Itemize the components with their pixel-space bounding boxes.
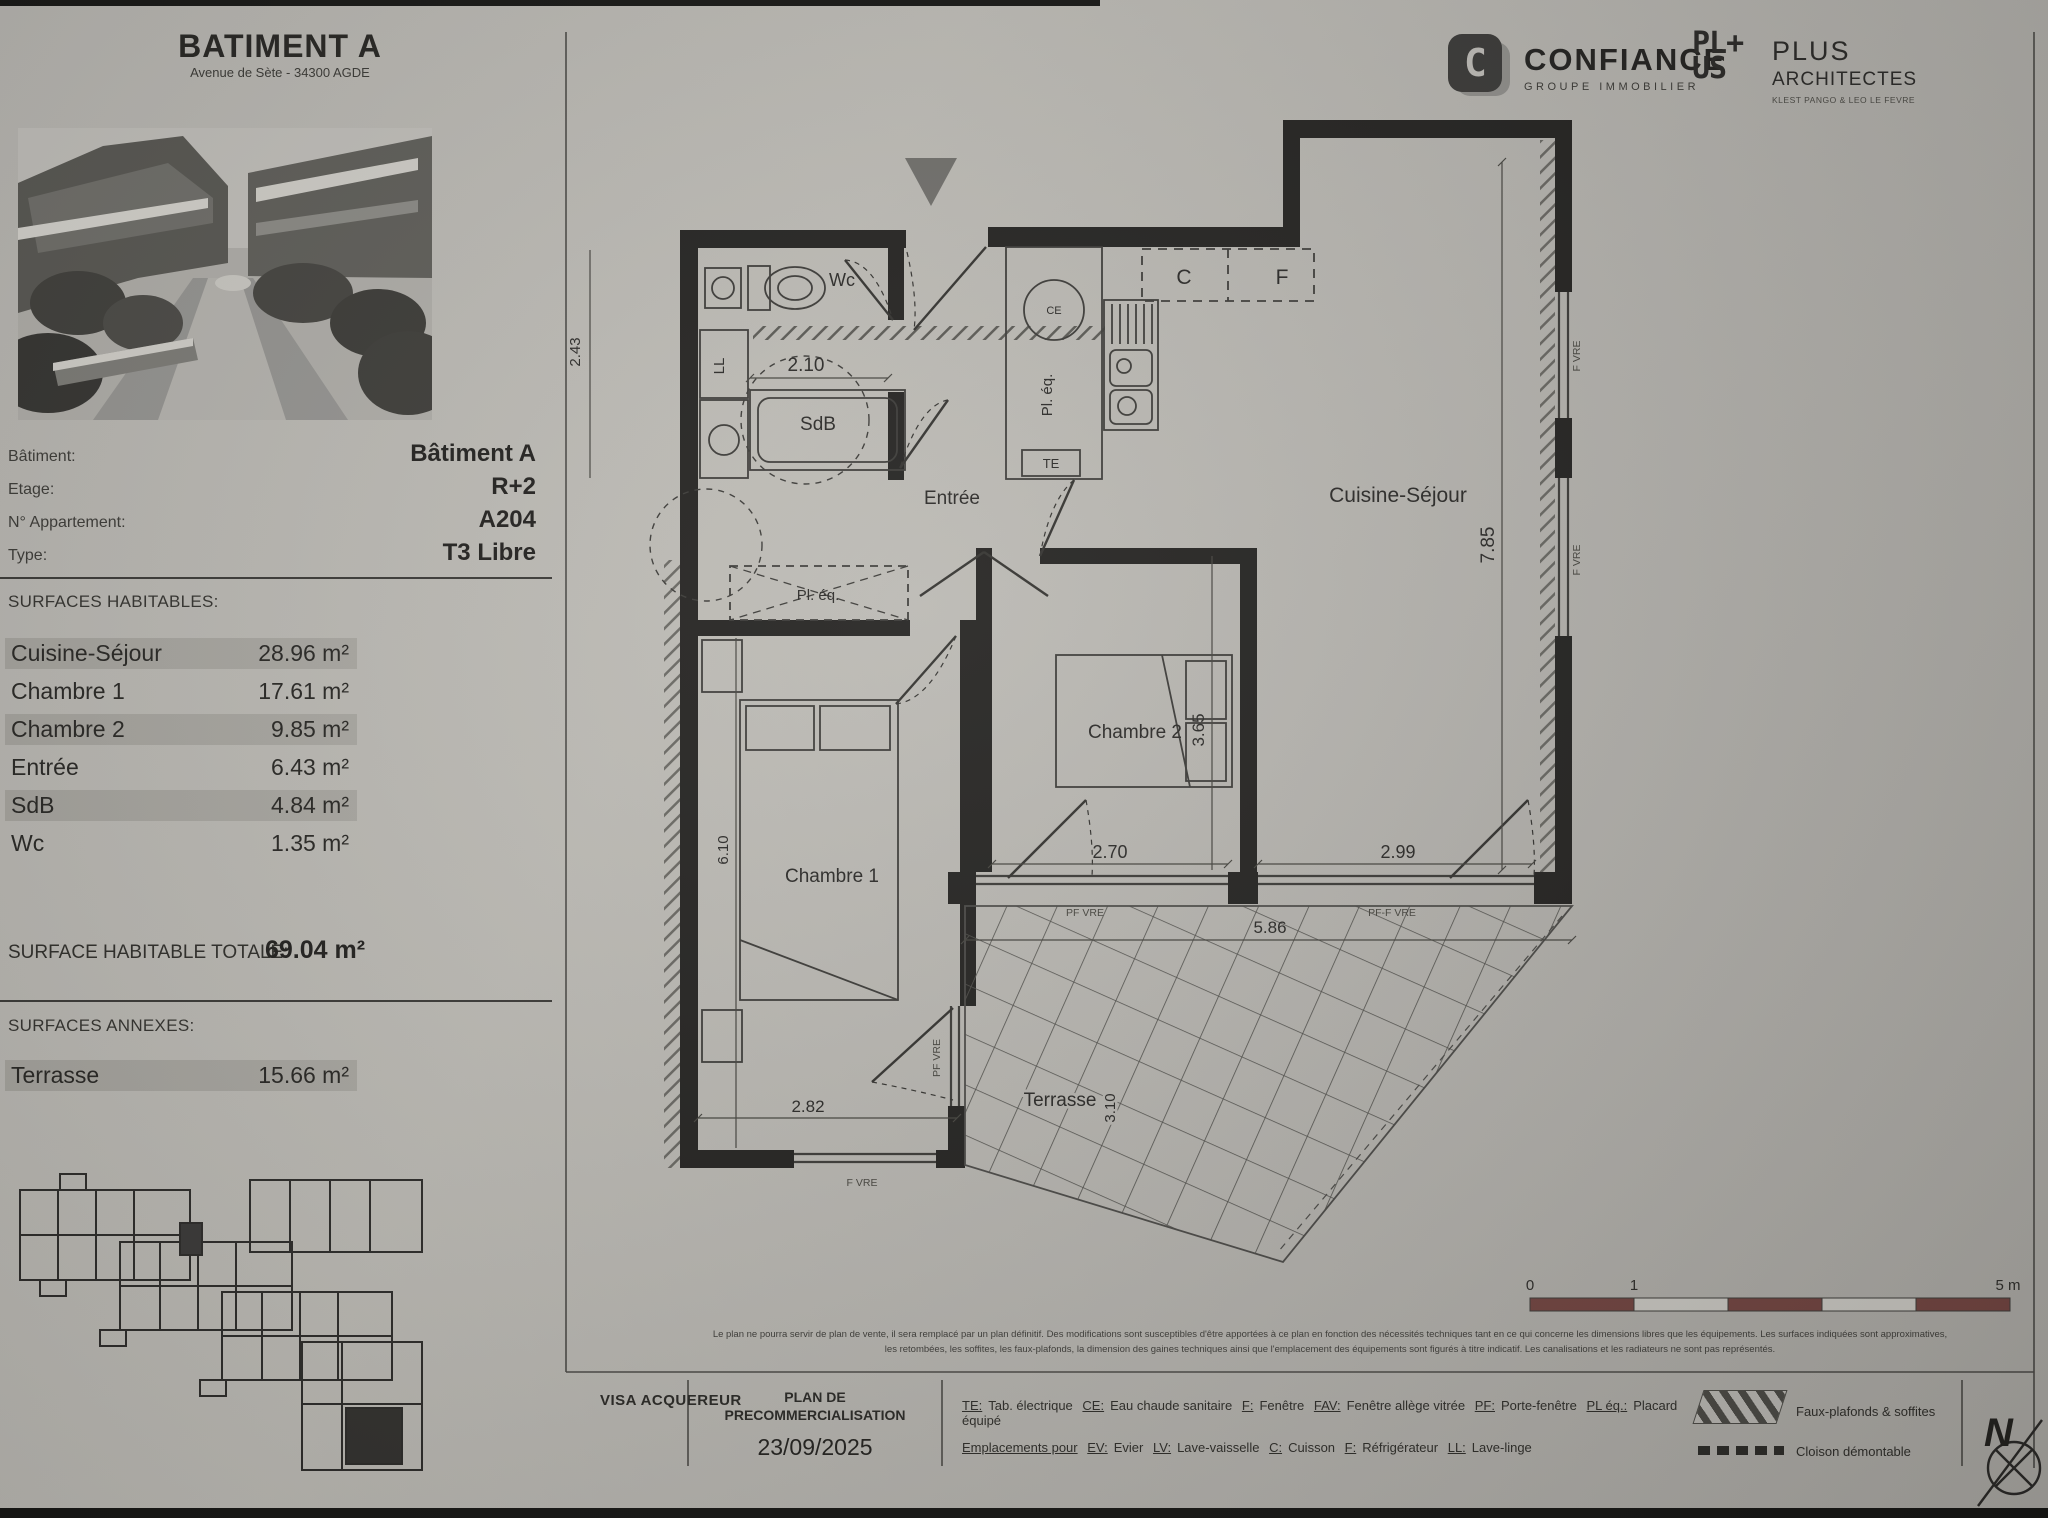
- legend-text: Tab. électrique: [988, 1398, 1073, 1413]
- dim-sdb-depth: 2.43: [567, 337, 584, 366]
- dim-sejour-height: 7.85: [1478, 527, 1499, 564]
- label-refrigerateur: F: [1276, 266, 1289, 289]
- dim-sejour-width: 2.99: [1380, 842, 1415, 862]
- room-label-terrasse: Terrasse: [1024, 1090, 1097, 1111]
- room-label-chambre2: Chambre 2: [1088, 722, 1182, 743]
- room-label-entree: Entrée: [924, 488, 980, 509]
- sdb-cabinet: [700, 400, 748, 478]
- window-tag: PF VRE: [1066, 907, 1104, 919]
- dim-chambre2-width: 2.70: [1092, 842, 1127, 862]
- legend-abbr: PL éq.:: [1586, 1398, 1627, 1413]
- faux-plafond-swatch-icon: [1692, 1390, 1787, 1424]
- room-label-chambre1: Chambre 1: [785, 866, 879, 887]
- north-arrow-icon: N: [1978, 1411, 2042, 1506]
- placard-kitchen: [1006, 247, 1102, 479]
- plan-type-line1: PLAN DE: [700, 1388, 930, 1406]
- legend-text: Fenêtre: [1259, 1398, 1304, 1413]
- plan-type-block: PLAN DE PRECOMMERCIALISATION 23/09/2025: [700, 1388, 930, 1461]
- toilet-bowl: [765, 267, 825, 309]
- dim-chambre1-depth: 6.10: [715, 835, 732, 864]
- scale-tick-1: 1: [1630, 1277, 1638, 1294]
- floor-plan: Wc SdB Entrée Cuisine-Séjour Chambre 2 C…: [0, 0, 2048, 1518]
- room-label-sdb: SdB: [800, 414, 836, 435]
- scale-tick-0: 0: [1526, 1277, 1534, 1294]
- scale-tick-5m: 5 m: [1995, 1277, 2020, 1294]
- window-tag: F VRE: [847, 1177, 878, 1189]
- legend-abbr: F:: [1345, 1440, 1357, 1455]
- label-placard-hall: Pl. éq.: [797, 587, 840, 604]
- label-placard-kitchen: Pl. éq.: [1039, 374, 1056, 417]
- legend-abbr: TE:: [962, 1398, 982, 1413]
- dim-terrasse-width: 5.86: [1253, 918, 1286, 937]
- cloison-swatch-icon: [1698, 1446, 1784, 1455]
- terrace-area: [965, 906, 1572, 1262]
- bed-chambre1: [740, 700, 898, 1000]
- window-tag: F VRE: [1571, 545, 1583, 576]
- legend-abbr: F:: [1242, 1398, 1254, 1413]
- legend-row2: Emplacements pour EV:Evier LV:Lave-vaiss…: [962, 1440, 1682, 1455]
- soffit-hatch: [664, 560, 680, 1168]
- window-tag: F VRE: [1571, 341, 1583, 372]
- disclaimer: Le plan ne pourra servir de plan de vent…: [645, 1328, 2015, 1357]
- plan-sheet: BATIMENT A Avenue de Sète - 34300 AGDE B…: [0, 0, 2048, 1518]
- room-label-cuisine-sejour: Cuisine-Séjour: [1329, 484, 1467, 507]
- disclaimer-line1: Le plan ne pourra servir de plan de vent…: [645, 1328, 2015, 1343]
- dim-terrasse-depth: 3.10: [1102, 1093, 1119, 1122]
- legend-abbr: PF:: [1475, 1398, 1495, 1413]
- legend-abbr: C:: [1269, 1440, 1282, 1455]
- cloison-label: Cloison démontable: [1796, 1444, 1911, 1459]
- north-label: N: [1984, 1411, 2014, 1455]
- site-plan-marker: [180, 1223, 202, 1255]
- legend-intro: Emplacements pour: [962, 1440, 1078, 1455]
- legend-abbr: FAV:: [1314, 1398, 1341, 1413]
- legend-text: Cuisson: [1288, 1440, 1335, 1455]
- room-label-wc: Wc: [829, 270, 855, 290]
- legend-text: Porte-fenêtre: [1501, 1398, 1577, 1413]
- dim-chambre2-depth: 3.65: [1189, 713, 1208, 746]
- toilet-tank: [748, 266, 770, 310]
- legend-row1: TE:Tab. électrique CE:Eau chaude sanitai…: [962, 1398, 1682, 1428]
- legend-abbr: EV:: [1087, 1440, 1107, 1455]
- window-tag: PF-F VRE: [1368, 907, 1416, 919]
- scale-bar: 0 1 5 m: [1526, 1277, 2021, 1311]
- label-tableau-electrique: TE: [1043, 456, 1060, 471]
- legend-text: Réfrigérateur: [1362, 1440, 1438, 1455]
- cloison-demontable: [753, 326, 1105, 340]
- plan-date: 23/09/2025: [700, 1434, 930, 1461]
- faux-plafond-label: Faux-plafonds & soffites: [1796, 1404, 1935, 1419]
- disclaimer-line2: les retombées, les soffites, les faux-pl…: [645, 1343, 2015, 1358]
- dim-chambre1-width: 2.82: [791, 1097, 824, 1116]
- dim-sdb-width: 2.10: [788, 355, 825, 376]
- legend-text: Lave-linge: [1472, 1440, 1532, 1455]
- legend-text: Fenêtre allège vitrée: [1347, 1398, 1466, 1413]
- legend-text: Eau chaude sanitaire: [1110, 1398, 1232, 1413]
- label-lave-linge: LL: [711, 358, 728, 375]
- legend-abbr: LV:: [1153, 1440, 1171, 1455]
- window-tag: PF VRE: [931, 1039, 943, 1077]
- entrance-arrow-icon: [905, 158, 957, 206]
- legend-text: Evier: [1114, 1440, 1144, 1455]
- site-plan: [20, 1174, 422, 1470]
- legend-abbr: LL:: [1448, 1440, 1466, 1455]
- site-plan-unit-a204: [346, 1408, 402, 1464]
- soffit-hatch: [1540, 140, 1555, 872]
- plan-type-line2: PRECOMMERCIALISATION: [700, 1406, 930, 1424]
- legend-abbr: CE:: [1082, 1398, 1104, 1413]
- label-chauffe-eau: CE: [1046, 305, 1061, 317]
- legend-text: Lave-vaisselle: [1177, 1440, 1259, 1455]
- washbasin: [705, 268, 741, 308]
- label-cuisson: C: [1176, 266, 1191, 289]
